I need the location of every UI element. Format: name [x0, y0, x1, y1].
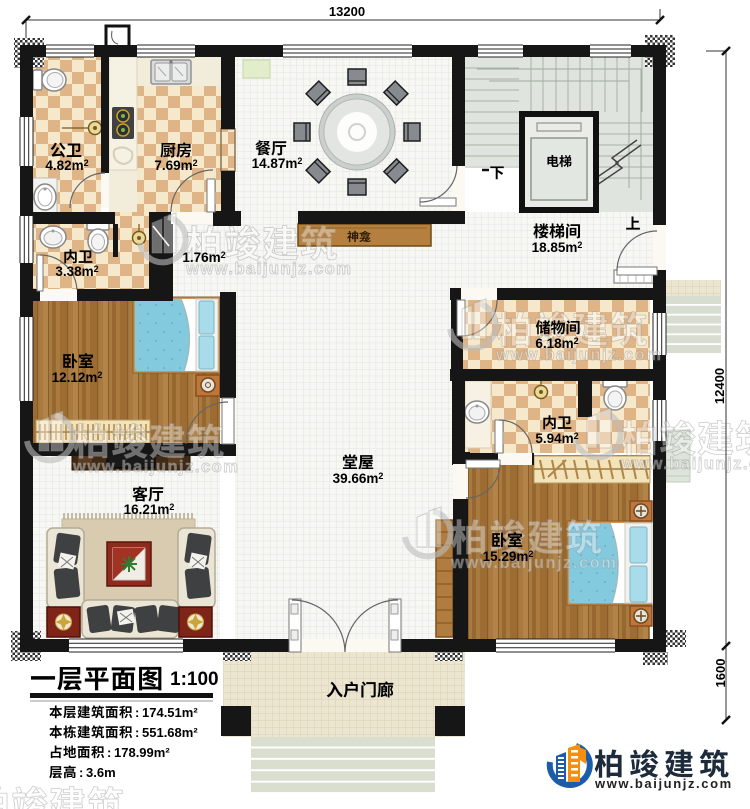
svg-text:18.85m2: 18.85m2	[532, 240, 583, 255]
svg-text:3.38m2: 3.38m2	[55, 264, 98, 279]
svg-text:15.29m2: 15.29m2	[483, 549, 534, 564]
svg-text:6.18m2: 6.18m2	[535, 336, 578, 351]
svg-text:14.87m2: 14.87m2	[252, 156, 303, 171]
svg-text:12400: 12400	[712, 368, 727, 404]
svg-text:174.51m²: 174.51m²	[142, 705, 198, 720]
svg-text:551.68m²: 551.68m²	[142, 725, 198, 740]
svg-text:www.baijunjz.com: www.baijunjz.com	[594, 776, 733, 791]
svg-text:16.21m2: 16.21m2	[124, 502, 175, 517]
svg-text::: :	[107, 745, 111, 760]
svg-text::: :	[135, 725, 139, 740]
svg-text:1600: 1600	[713, 659, 728, 688]
svg-text:12.12m2: 12.12m2	[52, 370, 103, 385]
svg-text:178.99m²: 178.99m²	[114, 745, 170, 760]
svg-text:4.82m2: 4.82m2	[45, 158, 88, 173]
svg-text:1.76m2: 1.76m2	[182, 250, 225, 265]
svg-text:1:100: 1:100	[170, 669, 219, 690]
svg-text:3.6m: 3.6m	[86, 765, 116, 780]
svg-text:7.69m2: 7.69m2	[154, 158, 197, 173]
svg-text:www.baijunjz.com: www.baijunjz.com	[450, 554, 617, 572]
svg-text::: :	[79, 765, 83, 780]
svg-text:5.94m2: 5.94m2	[535, 431, 578, 446]
svg-text:39.66m2: 39.66m2	[333, 471, 384, 486]
svg-text::: :	[135, 705, 139, 720]
svg-text:www.baijunjz.com: www.baijunjz.com	[620, 455, 750, 473]
svg-text:www.baijunjz.com: www.baijunjz.com	[72, 458, 239, 476]
svg-text:13200: 13200	[329, 4, 365, 19]
svg-text:www.baijunjz.com: www.baijunjz.com	[495, 346, 662, 364]
